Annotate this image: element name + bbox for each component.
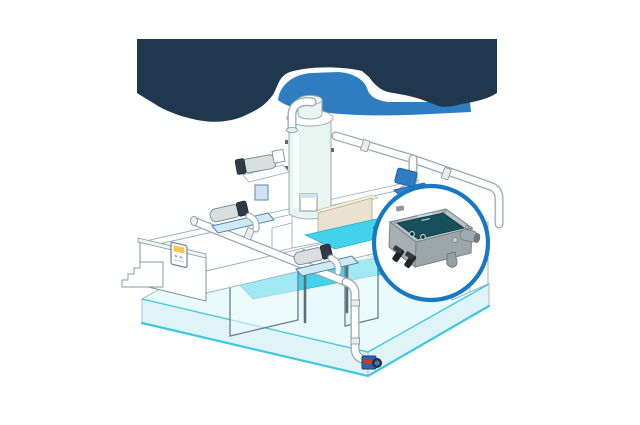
tower-pedestal-step — [272, 223, 292, 253]
tower-elbow-opening — [287, 127, 298, 132]
lid-screw — [452, 237, 457, 242]
tower-nub-2 — [331, 148, 334, 152]
indicator-window-1 — [410, 232, 415, 237]
wall-control-box — [171, 242, 187, 268]
lid-screw-2 — [442, 209, 445, 212]
control-cabinet-blue — [255, 185, 268, 200]
lid-screw-3 — [465, 225, 468, 228]
back-pump-coupling — [272, 149, 285, 163]
control-cabinet-top — [300, 194, 317, 198]
down-pipe-collar-2 — [351, 338, 360, 344]
mounting-hook — [447, 252, 457, 267]
indicator-window-2 — [421, 235, 426, 240]
facility-illustration — [0, 0, 640, 425]
lid-screw-1 — [394, 220, 397, 223]
callout — [374, 186, 488, 300]
outlet-pump-eye — [374, 360, 379, 365]
tower-nub-1 — [285, 140, 288, 144]
front-pipe-end-flange — [191, 216, 198, 225]
stairs — [122, 262, 163, 287]
down-pipe-collar-1 — [351, 300, 360, 306]
illustration-canvas — [0, 0, 640, 425]
